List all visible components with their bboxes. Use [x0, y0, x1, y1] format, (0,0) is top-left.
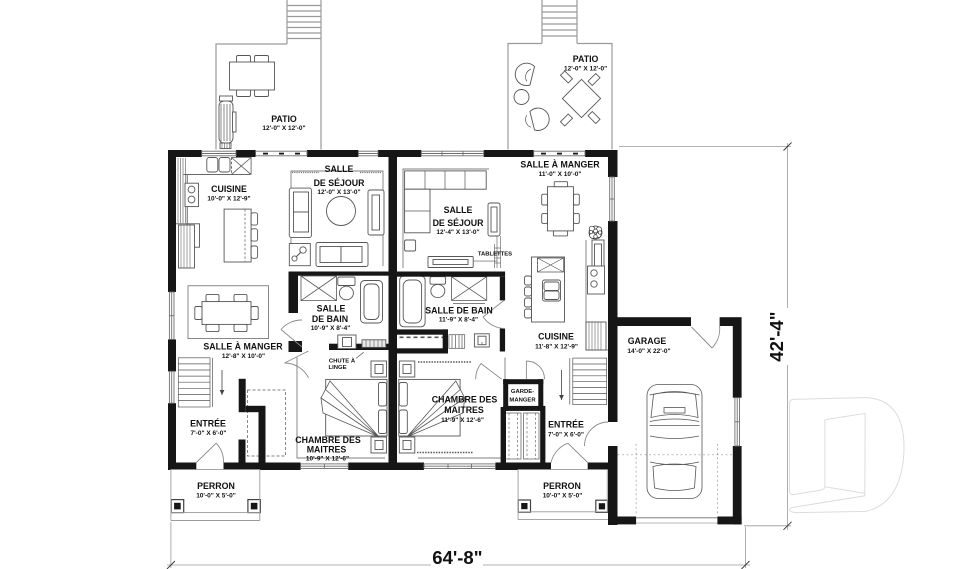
svg-text:11'-9" X 12'-6": 11'-9" X 12'-6"	[441, 417, 484, 424]
svg-text:14'-0" X 22'-0": 14'-0" X 22'-0"	[627, 348, 670, 355]
svg-text:7'-0" X 6'-0": 7'-0" X 6'-0"	[548, 432, 584, 439]
svg-text:10'-0" X 5'-0": 10'-0" X 5'-0"	[196, 493, 236, 500]
svg-text:12'-0" X 12'-0": 12'-0" X 12'-0"	[564, 66, 607, 73]
svg-text:MAITRES: MAITRES	[307, 444, 347, 454]
svg-text:MAITRES: MAITRES	[444, 405, 484, 415]
svg-text:12'-4" X 13'-0": 12'-4" X 13'-0"	[436, 229, 479, 236]
svg-text:10'-0" X 5'-0": 10'-0" X 5'-0"	[543, 493, 583, 500]
svg-text:10'-9" X 8'-4": 10'-9" X 8'-4"	[311, 325, 351, 332]
svg-text:12'-0" X 12'-0": 12'-0" X 12'-0"	[262, 125, 305, 132]
svg-text:CUISINE: CUISINE	[538, 332, 574, 342]
svg-text:MANGER: MANGER	[509, 398, 536, 404]
svg-text:12'-0" X 13'-0": 12'-0" X 13'-0"	[317, 189, 360, 196]
svg-text:ENTRÉE: ENTRÉE	[548, 420, 584, 430]
svg-text:11'-9" X 8'-4": 11'-9" X 8'-4"	[439, 317, 478, 324]
svg-text:PERRON: PERRON	[543, 481, 581, 491]
svg-text:SALLE À MANGER: SALLE À MANGER	[520, 160, 600, 170]
svg-text:DE BAIN: DE BAIN	[312, 314, 348, 324]
svg-text:ENTRÉE: ENTRÉE	[190, 419, 226, 429]
svg-text:CUISINE: CUISINE	[211, 184, 247, 194]
svg-text:42'-4": 42'-4"	[766, 311, 787, 361]
svg-text:12'-8" X 10'-0": 12'-8" X 10'-0"	[222, 353, 265, 360]
svg-text:64'-8": 64'-8"	[432, 547, 482, 568]
svg-text:11'-0" X 10'-0": 11'-0" X 10'-0"	[539, 171, 582, 178]
svg-text:SALLE: SALLE	[444, 205, 473, 215]
svg-text:7'-0" X 6'-0": 7'-0" X 6'-0"	[191, 430, 227, 437]
svg-text:SALLE: SALLE	[317, 304, 346, 314]
svg-text:GARAGE: GARAGE	[628, 336, 667, 346]
svg-text:SALLE: SALLE	[325, 164, 354, 174]
svg-text:DE SÉJOUR: DE SÉJOUR	[433, 218, 484, 228]
svg-text:LINGE: LINGE	[329, 365, 347, 371]
svg-text:10'-0" X 12'-9": 10'-0" X 12'-9"	[207, 196, 250, 203]
svg-text:10'-9" X 12'-6": 10'-9" X 12'-6"	[306, 456, 349, 463]
svg-text:SALLE DE BAIN: SALLE DE BAIN	[425, 306, 492, 316]
svg-text:CHAMBRE DES: CHAMBRE DES	[432, 395, 498, 405]
svg-text:PATIO: PATIO	[271, 114, 297, 124]
svg-text:PERRON: PERRON	[197, 481, 235, 491]
svg-text:DE SÉJOUR: DE SÉJOUR	[314, 178, 365, 188]
svg-text:SALLE À MANGER: SALLE À MANGER	[203, 342, 283, 352]
svg-text:PATIO: PATIO	[573, 54, 599, 64]
svg-text:CHUTE À: CHUTE À	[329, 358, 356, 365]
svg-text:GARDE-: GARDE-	[511, 389, 534, 395]
svg-text:11'-8" X 12'-9": 11'-8" X 12'-9"	[535, 344, 578, 351]
svg-text:TABLETTES: TABLETTES	[478, 252, 512, 258]
